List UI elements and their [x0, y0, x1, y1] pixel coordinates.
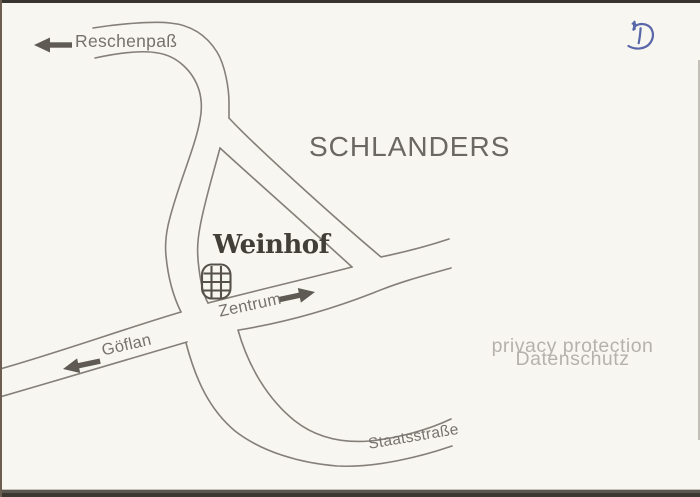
weinhof-poi-label: Weinhof: [213, 230, 329, 260]
reschenpass-road-label: Reschenpaß: [75, 31, 177, 52]
town-name-label: SCHLANDERS: [309, 131, 510, 163]
scan-edge-bottom: [0, 489, 700, 497]
west-road-lower-edge: [0, 342, 187, 397]
scan-edge-left: [0, 0, 2, 497]
postcard-map: Reschenpaß SCHLANDERS Weinhof Zentrum Gö…: [0, 0, 700, 497]
map-drawing: [0, 0, 700, 497]
main-road-left-edge: [95, 52, 201, 312]
staatsstrasse-upper-edge: [238, 330, 451, 441]
weinhof-building-icon: [202, 265, 231, 299]
zentrum-arrow-icon: [277, 285, 316, 307]
d-logo-icon: [629, 22, 653, 49]
staatsstrasse-lower-edge: [186, 343, 452, 466]
scan-edge-top: [0, 0, 700, 3]
watermark-line2: Datenschutz: [455, 353, 690, 366]
privacy-watermark: privacy protection Datenschutz: [455, 340, 690, 366]
reschenpass-arrow-icon: [34, 38, 72, 53]
